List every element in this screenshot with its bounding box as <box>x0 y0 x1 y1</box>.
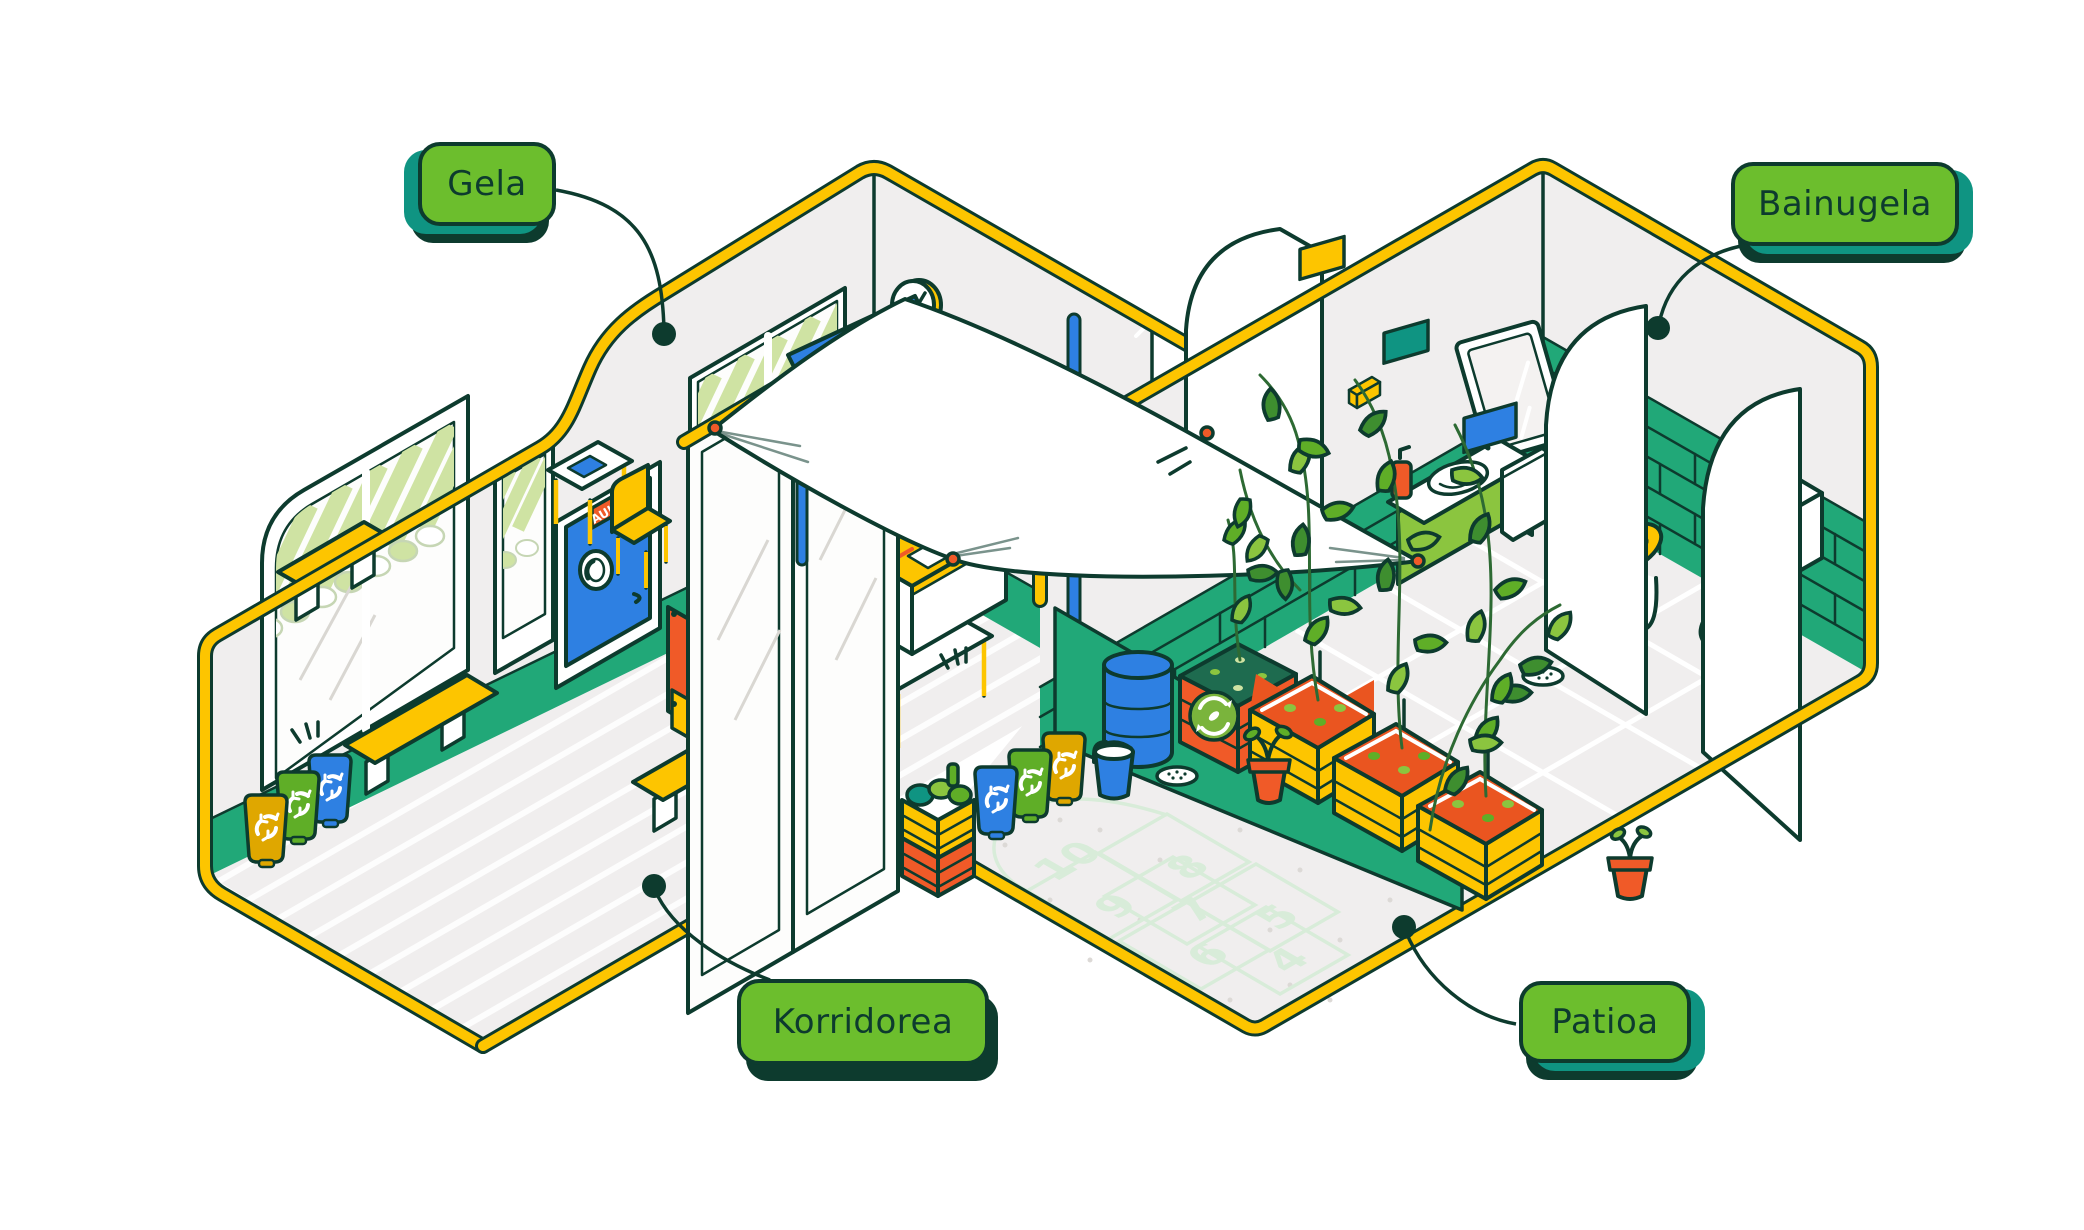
label-corridor-text: Korridorea <box>773 1002 954 1042</box>
leader-dot-bathroom <box>1646 316 1670 340</box>
bucket[interactable] <box>1095 742 1133 799</box>
leader-dot-corridor <box>642 874 666 898</box>
drain <box>1157 767 1197 785</box>
label-patio[interactable]: Patioa <box>1519 981 1691 1063</box>
leader-dot-classroom <box>652 322 676 346</box>
label-classroom[interactable]: Gela <box>418 142 556 226</box>
recycle-bin-blue <box>975 767 1017 839</box>
label-classroom-text: Gela <box>447 164 527 204</box>
toilet-partition <box>1546 306 1646 714</box>
flower-pot <box>1608 825 1652 899</box>
label-bathroom-text: Bainugela <box>1758 184 1932 224</box>
school-rooms-illustration: 10 9 8 7 6 5 4 <box>0 0 2084 1230</box>
recycle-bin-yellow <box>245 795 287 867</box>
label-bathroom[interactable]: Bainugela <box>1731 162 1959 246</box>
leader-dot-patio <box>1392 915 1416 939</box>
label-patio-text: Patioa <box>1551 1002 1658 1042</box>
compost-logo <box>1190 692 1238 740</box>
label-corridor[interactable]: Korridorea <box>737 979 989 1065</box>
